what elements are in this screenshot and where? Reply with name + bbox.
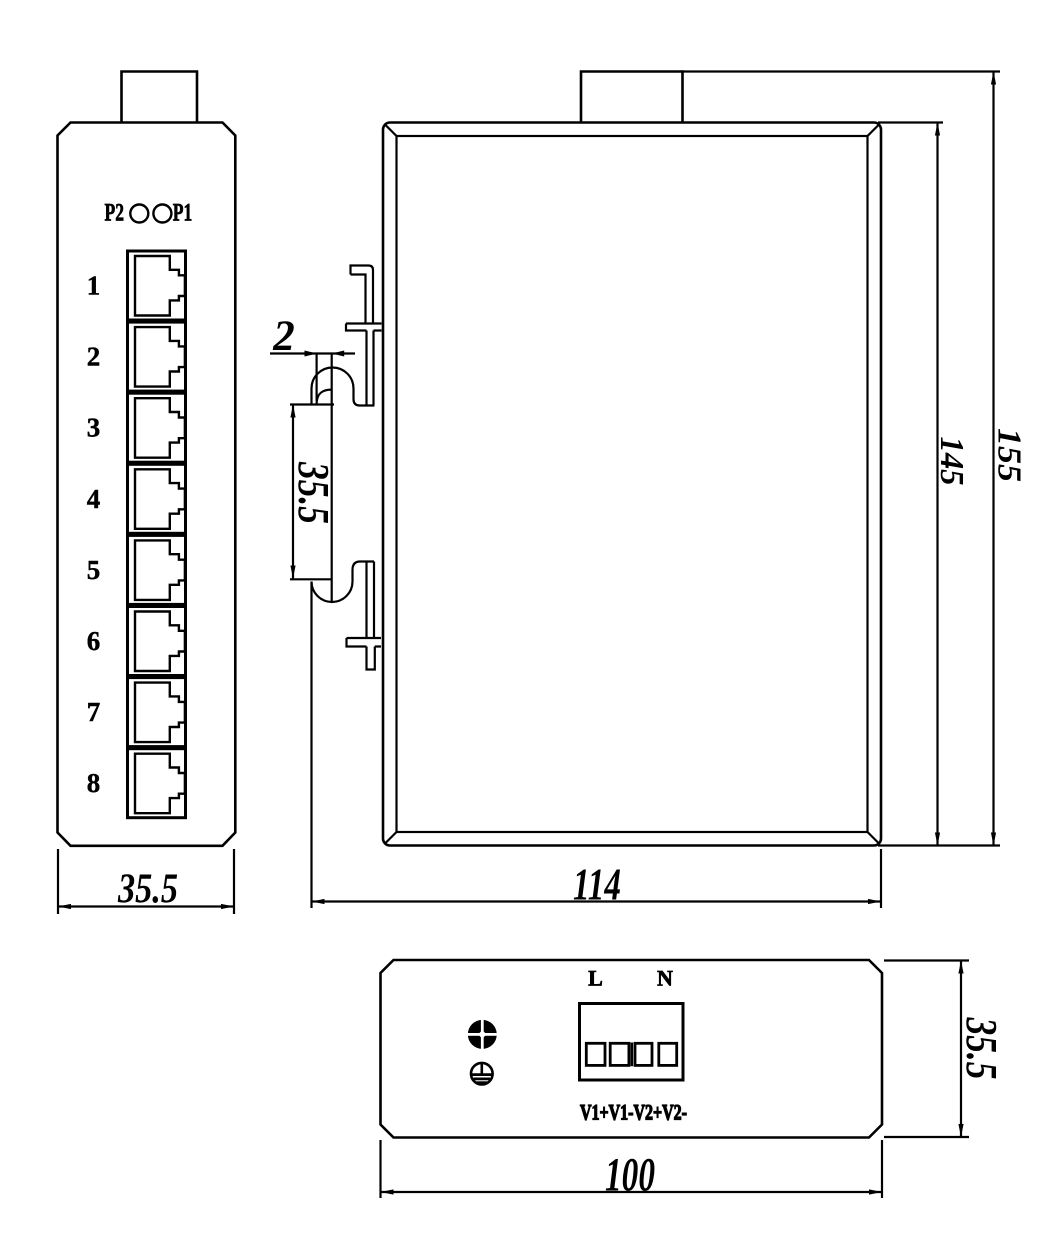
svg-text:P2: P2	[105, 200, 125, 227]
svg-text:L: L	[588, 966, 603, 991]
svg-text:2: 2	[87, 342, 101, 372]
svg-text:35.5: 35.5	[289, 461, 338, 524]
svg-text:8: 8	[87, 768, 101, 798]
svg-text:7: 7	[87, 697, 101, 727]
svg-text:6: 6	[87, 626, 101, 656]
svg-text:P1: P1	[173, 200, 193, 227]
svg-text:1: 1	[87, 271, 101, 301]
svg-text:35.5: 35.5	[957, 1017, 1006, 1080]
svg-text:3: 3	[87, 413, 101, 443]
svg-text:155: 155	[991, 428, 1028, 482]
svg-text:114: 114	[573, 860, 621, 910]
svg-text:35.5: 35.5	[117, 867, 178, 913]
svg-text:5: 5	[87, 555, 101, 585]
svg-text:100: 100	[605, 1149, 655, 1202]
svg-text:145: 145	[933, 437, 970, 486]
svg-text:V1+V1-V2+V2-: V1+V1-V2+V2-	[580, 1100, 687, 1125]
svg-text:4: 4	[87, 484, 101, 514]
svg-text:N: N	[657, 966, 673, 991]
